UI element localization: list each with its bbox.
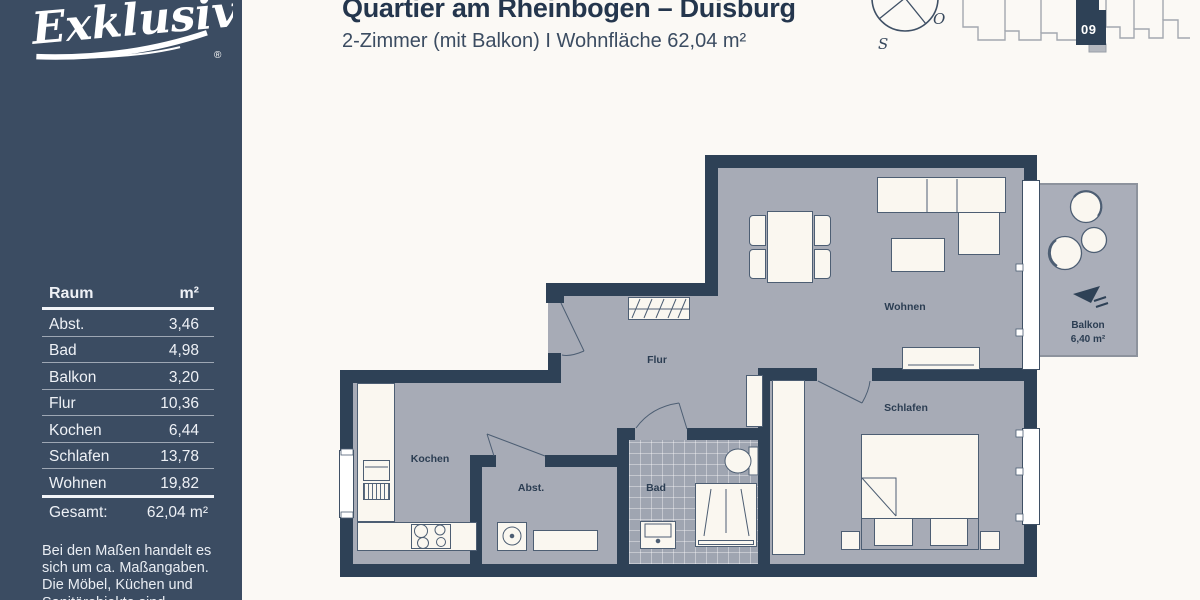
wall-bath-left (617, 428, 629, 564)
dining-chair (749, 215, 766, 246)
kitchen-counter-left (357, 383, 395, 522)
bathroom-sink (640, 521, 676, 549)
nightstand-right (980, 531, 1000, 550)
balcony-label: Balkon (1071, 320, 1104, 331)
double-bed (861, 434, 979, 550)
dining-chair (814, 215, 831, 246)
dining-table (767, 211, 813, 283)
balcony-door-window (1022, 180, 1040, 370)
wall-kitchen-top (340, 370, 561, 383)
kitchen-dishwasher (363, 483, 390, 500)
room-label-bad: Bad (646, 482, 666, 494)
bed-pillow-right (930, 518, 968, 546)
room-label-kochen: Kochen (411, 453, 450, 465)
kitchen-window (339, 450, 354, 518)
hall-wardrobe-rack (628, 297, 690, 320)
floorplan-sheet: { "colors": { "sidebar_navy": "#3b4c62",… (0, 0, 1200, 600)
dining-chair (814, 249, 831, 279)
bedroom-wardrobe (772, 380, 805, 555)
entrance-opening (548, 303, 561, 353)
sideboard (902, 347, 980, 370)
balcony-area-label: 6,40 m² (1071, 334, 1105, 345)
room-label-wohnen: Wohnen (884, 301, 925, 313)
room-label-schlafen: Schlafen (884, 402, 928, 414)
wall-bottom (340, 564, 1037, 577)
nightstand-left (841, 531, 860, 550)
wall-bath-top-right (687, 428, 758, 440)
bed-pillow-left (874, 518, 913, 546)
shower-door (698, 540, 754, 545)
washing-machine (497, 522, 527, 551)
wall-storage-top-right (545, 455, 617, 467)
wall-living-left (705, 168, 718, 296)
dining-chair (749, 249, 766, 279)
shower (695, 483, 757, 547)
cooktop (411, 524, 451, 549)
bed-mattress (862, 435, 978, 519)
room-label-flur: Flur (647, 354, 667, 366)
sofa (877, 177, 1006, 213)
storage-shelf (533, 530, 598, 551)
hall-cabinet (746, 375, 763, 427)
wall-top (705, 155, 1037, 168)
wall-hallway-top (548, 283, 718, 296)
coffee-table (891, 238, 945, 272)
entrance-pillar-top (546, 283, 564, 303)
entrance-pillar-bottom (548, 353, 561, 372)
bedroom-window (1022, 428, 1040, 525)
floor-plan: Flur Kochen Abst. Bad Schlafen Wohnen Ba… (0, 0, 1200, 600)
room-label-abstell: Abst. (518, 482, 544, 494)
kitchen-oven (363, 460, 390, 481)
